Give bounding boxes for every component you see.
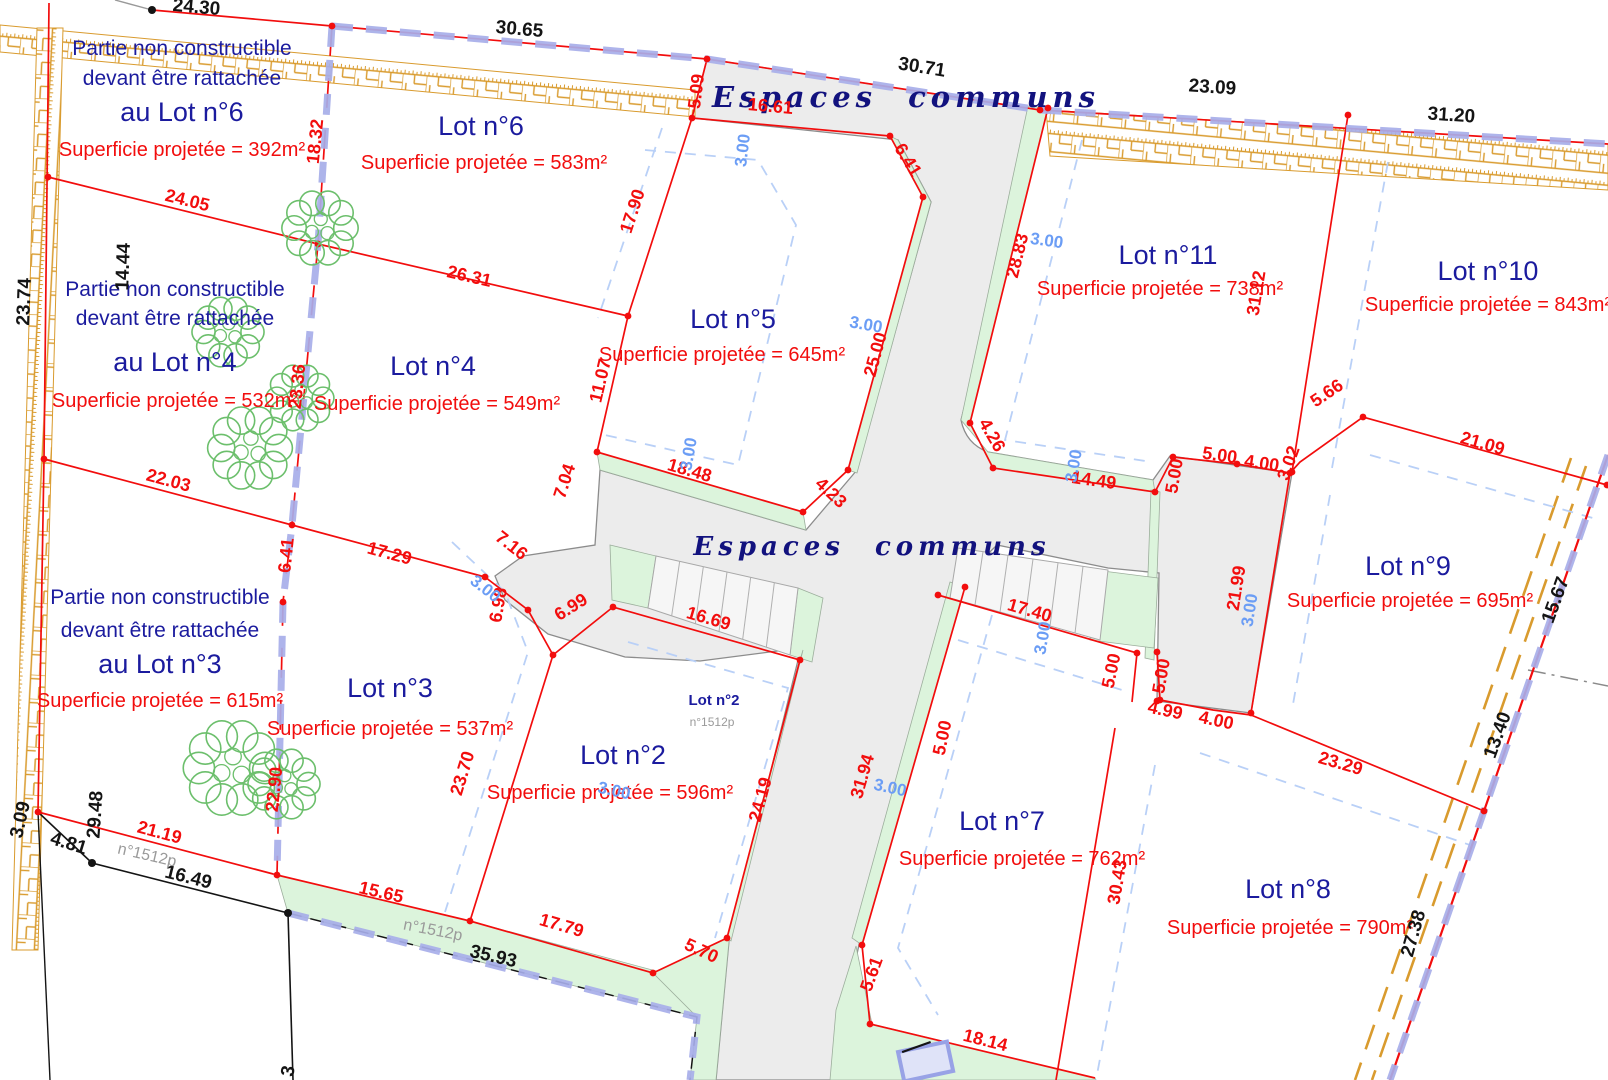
tree-scallop — [245, 462, 272, 489]
dimension-label: 7.04 — [549, 461, 579, 501]
vertex-dot — [525, 607, 532, 614]
tree-scallop — [206, 784, 237, 815]
hedge-strip-top-right — [1046, 110, 1608, 190]
tree-scallop — [183, 752, 214, 783]
vertex-dot — [797, 657, 804, 664]
vertex-dot — [887, 133, 894, 140]
vertex-dot — [967, 420, 974, 427]
lot-name-label: Lot n°2 — [580, 740, 666, 770]
vertex-dot — [280, 599, 287, 606]
tree-scallop — [233, 766, 250, 783]
vertex-dot — [1248, 710, 1255, 717]
cadastral-dot — [148, 6, 156, 14]
note-area-label: Superficie projetée = 615m² — [37, 690, 284, 712]
dimension-label: 16.61 — [747, 94, 794, 118]
small-lot2-parcel-label: n°1512p — [690, 715, 735, 729]
note-lot-ref: au Lot n°6 — [120, 97, 243, 127]
vertex-dot — [920, 194, 927, 201]
dimension-label: 30.71 — [897, 53, 948, 81]
vertex-dot — [800, 509, 807, 516]
lot-name-label: Lot n°3 — [347, 673, 433, 703]
vertex-dot — [689, 115, 696, 122]
tree-scallop — [285, 783, 297, 795]
tree-scallop — [213, 451, 240, 478]
dimension-label: 21.09 — [1458, 427, 1507, 459]
lot-area-label: Superficie projetée = 549m² — [314, 393, 561, 415]
vertex-dot — [1604, 482, 1608, 489]
vertex-dot — [45, 174, 52, 181]
tree-scallop — [190, 733, 221, 764]
dimension-label: 24.30 — [172, 0, 221, 20]
dimension-label: 17.79 — [537, 909, 586, 941]
lot-area-label: Superficie projetée = 537m² — [267, 718, 514, 740]
tree-scallop — [190, 772, 221, 803]
tree-icon — [208, 407, 293, 489]
dimension-label: 5.61 — [856, 954, 887, 994]
dimension-label: 17.29 — [365, 538, 414, 569]
tree-scallop — [229, 331, 241, 343]
vertex-dot — [35, 809, 42, 816]
tree-scallop — [208, 434, 235, 461]
cadastral-dot — [88, 859, 96, 867]
dimension-label: 22.03 — [144, 465, 193, 496]
vertex-dot — [650, 970, 657, 977]
setback-dimension-label: 3.00 — [848, 312, 884, 336]
tree-scallop — [227, 721, 258, 752]
vertex-dot — [1345, 112, 1352, 119]
parcel-number-label: n°1512p — [116, 841, 178, 871]
site-plan-page: Espaces communs Espaces communs Lot n°2 … — [0, 0, 1608, 1080]
lot-name-label: Lot n°8 — [1245, 874, 1331, 904]
dimension-label: 23.29 — [1316, 747, 1365, 779]
vertex-dot — [329, 23, 336, 30]
setback-dimension-label: 3.00 — [731, 133, 754, 168]
vertex-dot — [550, 652, 557, 659]
vertex-dot — [704, 56, 711, 63]
dimension-label: 15.67 — [1538, 574, 1574, 626]
dimension-label: 5.09 — [684, 73, 708, 110]
lot-area-label: Superficie projetée = 762m² — [899, 848, 1146, 870]
tree-scallop — [244, 431, 258, 445]
dimension-label: 5.00 — [1098, 652, 1125, 690]
dimension-label: 6.41 — [274, 537, 298, 574]
setback-dimension-label: 3.00 — [1029, 229, 1064, 252]
tree-scallop — [214, 330, 226, 342]
vertex-dot — [962, 584, 969, 591]
vertex-dot — [845, 467, 852, 474]
vertex-dot — [467, 918, 474, 925]
vertex-dot — [274, 872, 281, 879]
dimension-label: 14.44 — [112, 242, 135, 291]
tree-scallop — [282, 216, 306, 240]
vertex-dot — [594, 449, 601, 456]
dimension-label: 31.20 — [1427, 103, 1476, 127]
note-line: Partie non constructible — [50, 586, 269, 609]
dimension-label: 22.90 — [262, 766, 287, 813]
note-line: Partie non constructible — [65, 278, 284, 301]
vertex-dot — [935, 592, 942, 599]
lot-name-label: Lot n°4 — [390, 351, 476, 381]
tree-scallop — [260, 451, 287, 478]
vertex-dot — [859, 942, 866, 949]
dimension-label: 3 — [277, 1064, 300, 1078]
lot-area-label: Superficie projetée = 843m² — [1365, 294, 1608, 316]
lot-name-label: Lot n°10 — [1438, 256, 1539, 286]
vertex-dot — [1154, 649, 1161, 656]
vertex-dot — [610, 604, 617, 611]
dimension-label: 23.70 — [446, 749, 478, 798]
tree-scallop — [321, 227, 334, 240]
lot-name-label: Lot n°11 — [1119, 240, 1218, 270]
tree-scallop — [251, 446, 265, 460]
lot-name-label: Lot n°7 — [959, 806, 1045, 836]
note-line: devant être rattachée — [83, 67, 281, 90]
subdivision-plan: Espaces communs Espaces communs Lot n°2 … — [0, 0, 1608, 1080]
cadastral-dot — [284, 909, 292, 917]
dimension-label: 23.74 — [13, 277, 36, 326]
lot-area-label: Superficie projetée = 695m² — [1287, 590, 1534, 612]
dimension-label: 5.00 — [929, 719, 956, 757]
vertex-dot — [1134, 650, 1141, 657]
note-area-label: Superficie projetée = 532m² — [52, 390, 299, 412]
note-lot-ref: au Lot n°3 — [98, 649, 221, 679]
espaces-communs-center-label: Espaces communs — [692, 532, 1050, 562]
tree-scallop — [213, 417, 240, 444]
tree-scallop — [297, 772, 320, 795]
vertex-dot — [1152, 489, 1159, 496]
dimension-label: 17.90 — [616, 187, 649, 236]
note-line: devant être rattachée — [61, 619, 259, 642]
tree-scallop — [334, 216, 358, 240]
lot-area-label: Superficie projetée = 645m² — [599, 344, 846, 366]
tree-scallop — [206, 721, 237, 752]
lot-name-label: Lot n°6 — [438, 111, 524, 141]
lot-name-label: Lot n°5 — [690, 304, 776, 334]
tree-scallop — [213, 765, 230, 782]
tree-scallop — [225, 748, 242, 765]
dimension-label: 23.09 — [1188, 75, 1237, 99]
lot-area-label: Superficie projetée = 790m² — [1167, 917, 1414, 939]
vertex-dot — [1481, 808, 1488, 815]
dimension-label: 26.31 — [445, 261, 493, 291]
vertex-dot — [724, 935, 731, 942]
note-line: devant être rattachée — [76, 307, 274, 330]
tree-scallop — [228, 462, 255, 489]
dimension-label: 5.66 — [1307, 375, 1347, 411]
vertex-dot — [867, 1021, 874, 1028]
dimension-label: 21.19 — [135, 817, 184, 848]
vertex-dot — [41, 456, 48, 463]
dimension-label: 30.65 — [495, 17, 545, 42]
dimension-label: 31.12 — [1243, 269, 1270, 317]
dimension-label: 27.38 — [1397, 908, 1430, 959]
small-lot2-label: Lot n°2 — [689, 692, 740, 709]
tree-scallop — [265, 434, 292, 461]
setback-dimension-label: 3.00 — [1030, 620, 1054, 656]
tree-scallop — [234, 445, 248, 459]
vertex-dot — [990, 465, 997, 472]
note-line: Partie non constructible — [72, 37, 291, 60]
note-lot-ref: au Lot n°4 — [113, 347, 236, 377]
vertex-dot — [1360, 414, 1367, 421]
note-area-label: Superficie projetée = 392m² — [59, 139, 306, 161]
vertex-dot — [625, 313, 632, 320]
lot-name-label: Lot n°9 — [1365, 551, 1451, 581]
notes: Partie non constructibledevant être ratt… — [37, 37, 306, 712]
vertex-dot — [289, 522, 296, 529]
dimension-label: 29.48 — [83, 790, 107, 839]
dimension-label: 11.07 — [585, 357, 614, 404]
lot-area-label: Superficie projetée = 583m² — [361, 152, 608, 174]
